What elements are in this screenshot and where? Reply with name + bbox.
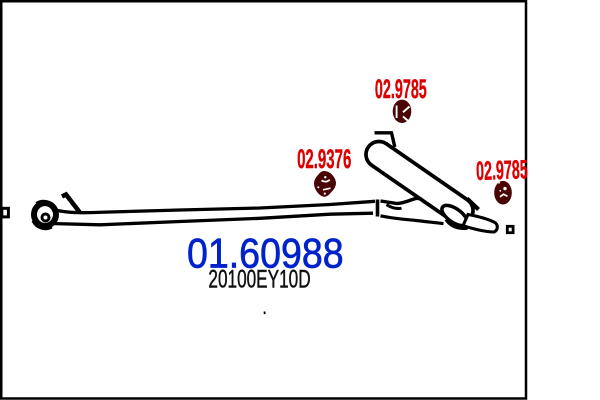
- svg-text:02.9376: 02.9376: [297, 145, 351, 175]
- svg-text:20100EY10D: 20100EY10D: [208, 265, 310, 293]
- svg-text:02.9785: 02.9785: [476, 155, 529, 187]
- svg-text:02.9785: 02.9785: [375, 75, 427, 105]
